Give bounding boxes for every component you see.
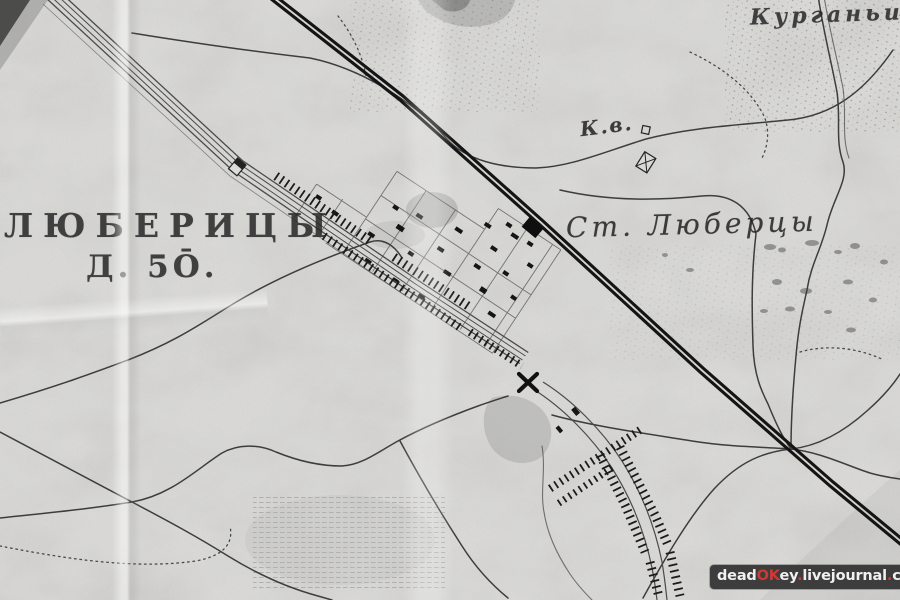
- forest-texture: [725, 0, 900, 132]
- scrub-texture: [350, 0, 540, 112]
- watermark-text: dead: [717, 568, 757, 584]
- watermark-text: ey: [780, 568, 798, 584]
- watermark: deadOKey.livejournal.com: [710, 565, 900, 589]
- watermark-text: livejournal: [802, 568, 887, 584]
- map-canvas: [0, 0, 900, 600]
- watermark-text: com: [892, 568, 900, 584]
- map-scan: [0, 0, 900, 600]
- watermark-accent: OK: [757, 568, 780, 584]
